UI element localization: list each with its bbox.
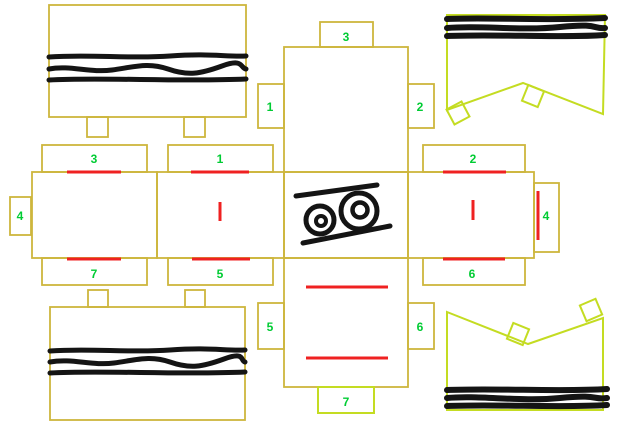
tab-label: 6 (417, 320, 424, 334)
strip-bottom-face (284, 258, 408, 387)
bottom-left-striped-panel (50, 290, 245, 420)
face-doodle (296, 185, 390, 243)
tab-label: 3 (343, 30, 350, 44)
glue-tab (88, 290, 108, 307)
tab-label: 6 (469, 267, 476, 281)
left-eye (306, 206, 334, 234)
stripe-drawing (447, 389, 607, 390)
glue-tab (185, 290, 205, 307)
tab-label: 2 (417, 100, 424, 114)
tab-label: 7 (91, 267, 98, 281)
tab-label: 4 (17, 209, 24, 223)
tab-label: 1 (217, 152, 224, 166)
tab-label: 4 (543, 209, 550, 223)
strip-top-face (284, 47, 408, 172)
tab-label: 5 (217, 267, 224, 281)
stripe-drawing (447, 397, 607, 400)
tab-label: 3 (91, 152, 98, 166)
net-canvas: 3 1 2 5 6 7 3 (0, 0, 620, 437)
tab-label: 1 (267, 100, 274, 114)
stripe-drawing (50, 349, 245, 351)
tab-label: 2 (470, 152, 477, 166)
left-eye-pupil (316, 216, 326, 226)
stripe-drawing (49, 55, 246, 57)
glue-tab (184, 117, 205, 137)
right-eye-pupil (353, 203, 368, 218)
top-right-roof-piece (447, 15, 605, 124)
tab-label: 7 (343, 395, 350, 409)
stripe-drawing (447, 18, 605, 19)
stripe-drawing (447, 405, 607, 406)
row-left-face (32, 172, 157, 258)
right-eye (341, 193, 377, 229)
glue-tab (580, 299, 602, 321)
stripe-drawing (49, 79, 246, 80)
stripe-drawing (50, 372, 245, 373)
papercraft-net-template: 3 1 2 5 6 7 3 (0, 0, 620, 437)
panel-outline (49, 5, 246, 117)
stripe-drawing (447, 35, 605, 36)
stripe-drawing (447, 26, 605, 29)
tab-label: 5 (267, 320, 274, 334)
row-right-face (408, 172, 534, 258)
bottom-right-roof-piece (447, 299, 607, 410)
glue-tab (87, 117, 108, 137)
top-left-striped-panel (49, 5, 246, 137)
